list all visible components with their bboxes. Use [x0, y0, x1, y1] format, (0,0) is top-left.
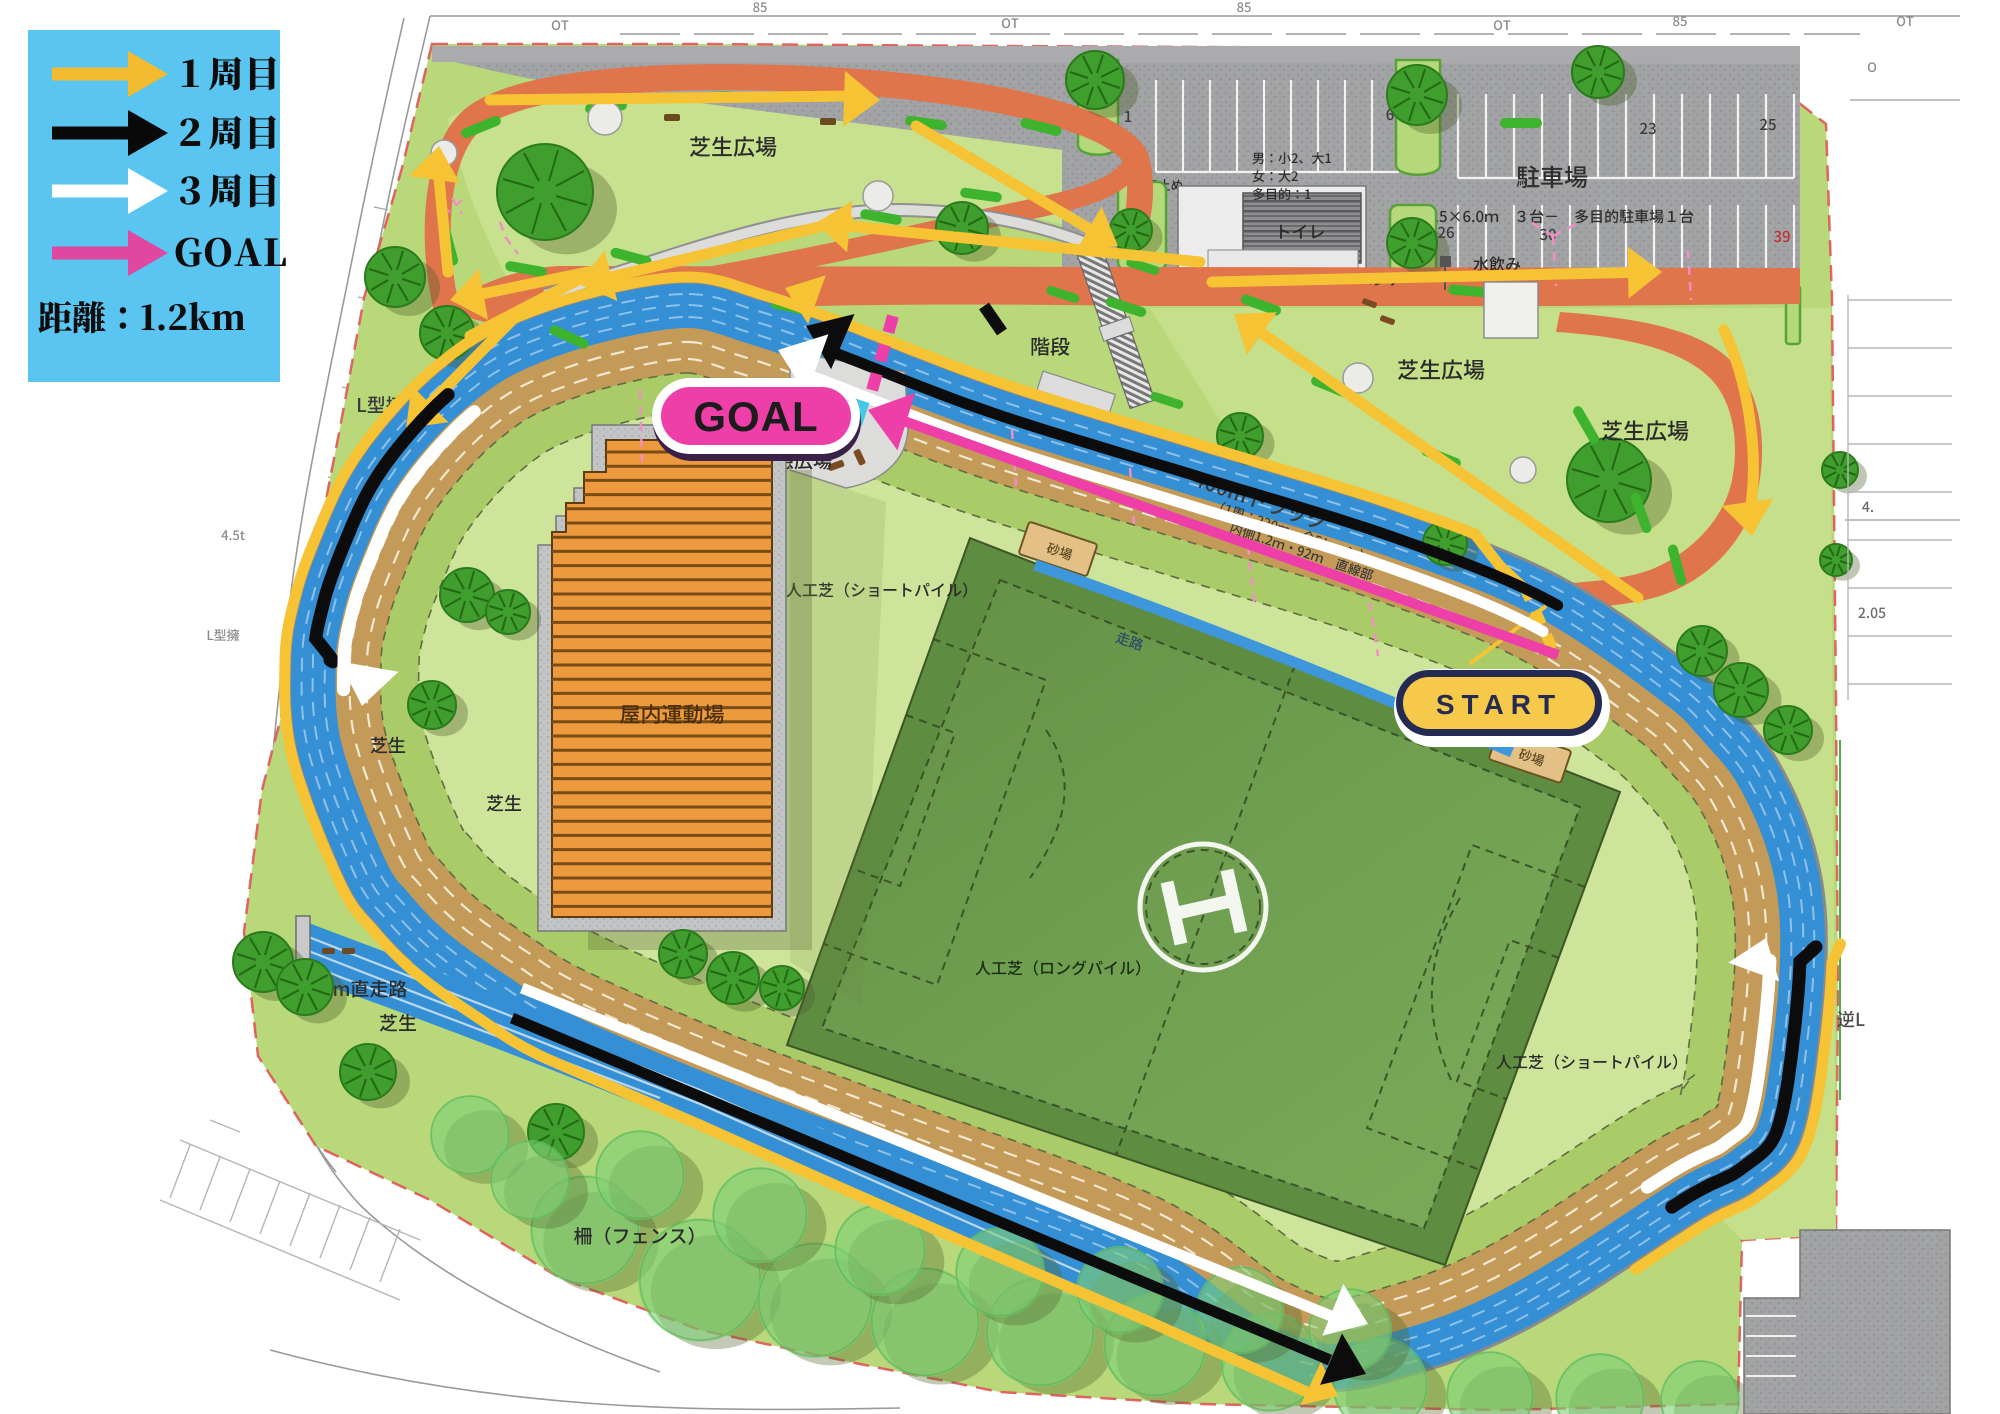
svg-text:GOAL: GOAL [693, 393, 818, 440]
svg-text:START: START [1436, 689, 1562, 720]
